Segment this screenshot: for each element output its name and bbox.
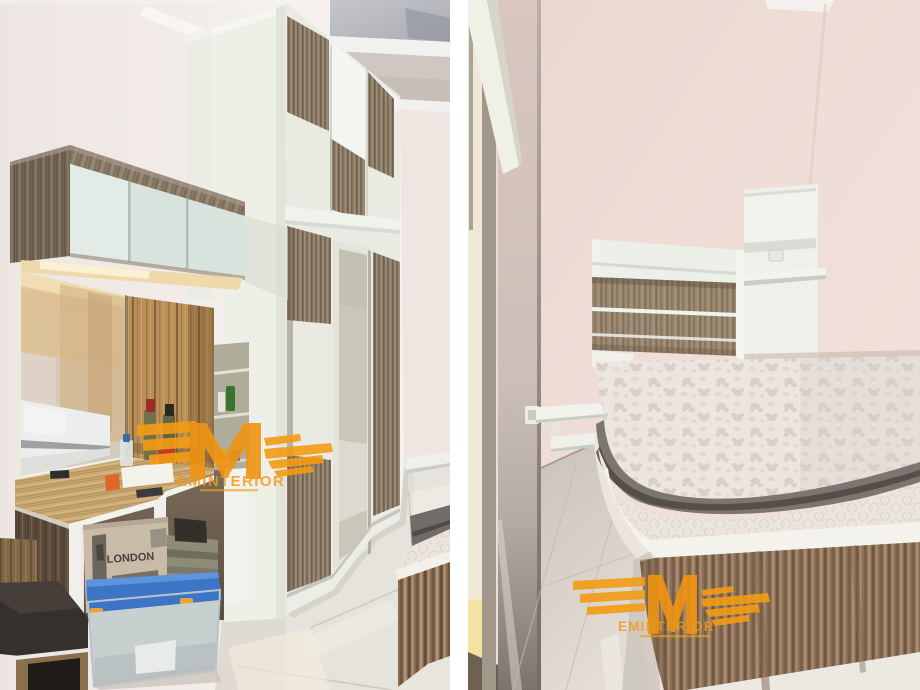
svg-text:EMINTERIOR: EMINTERIOR: [177, 473, 285, 490]
svg-text:EMINTERIOR: EMINTERIOR: [618, 619, 715, 634]
